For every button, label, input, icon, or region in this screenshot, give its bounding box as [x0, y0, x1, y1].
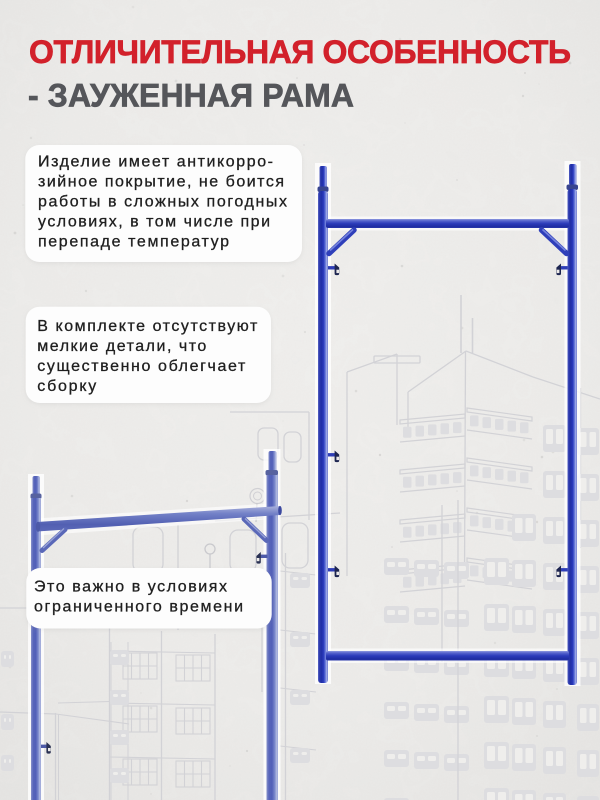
svg-text:ОТЛИЧИТЕЛЬНАЯ ОСОБЕННОСТЬ: ОТЛИЧИТЕЛЬНАЯ ОСОБЕННОСТЬ	[29, 34, 571, 70]
svg-text:- ЗАУЖЕННАЯ РАМА: - ЗАУЖЕННАЯ РАМА	[28, 78, 354, 114]
svg-text:работы в сложных погодных: работы в сложных погодных	[38, 194, 287, 211]
svg-text:существенно облегчает: существенно облегчает	[37, 358, 246, 375]
svg-text:Изделие имеет антикорро-: Изделие имеет антикорро-	[38, 154, 273, 171]
svg-text:мелкие детали, что: мелкие детали, что	[37, 338, 206, 355]
svg-text:В комплекте отсутствуют: В комплекте отсутствуют	[37, 318, 258, 335]
svg-text:сборку: сборку	[37, 378, 96, 395]
svg-text:зийное покрытие, не боится: зийное покрытие, не боится	[38, 174, 284, 191]
svg-text:условиях, в том числе при: условиях, в том числе при	[38, 214, 270, 231]
